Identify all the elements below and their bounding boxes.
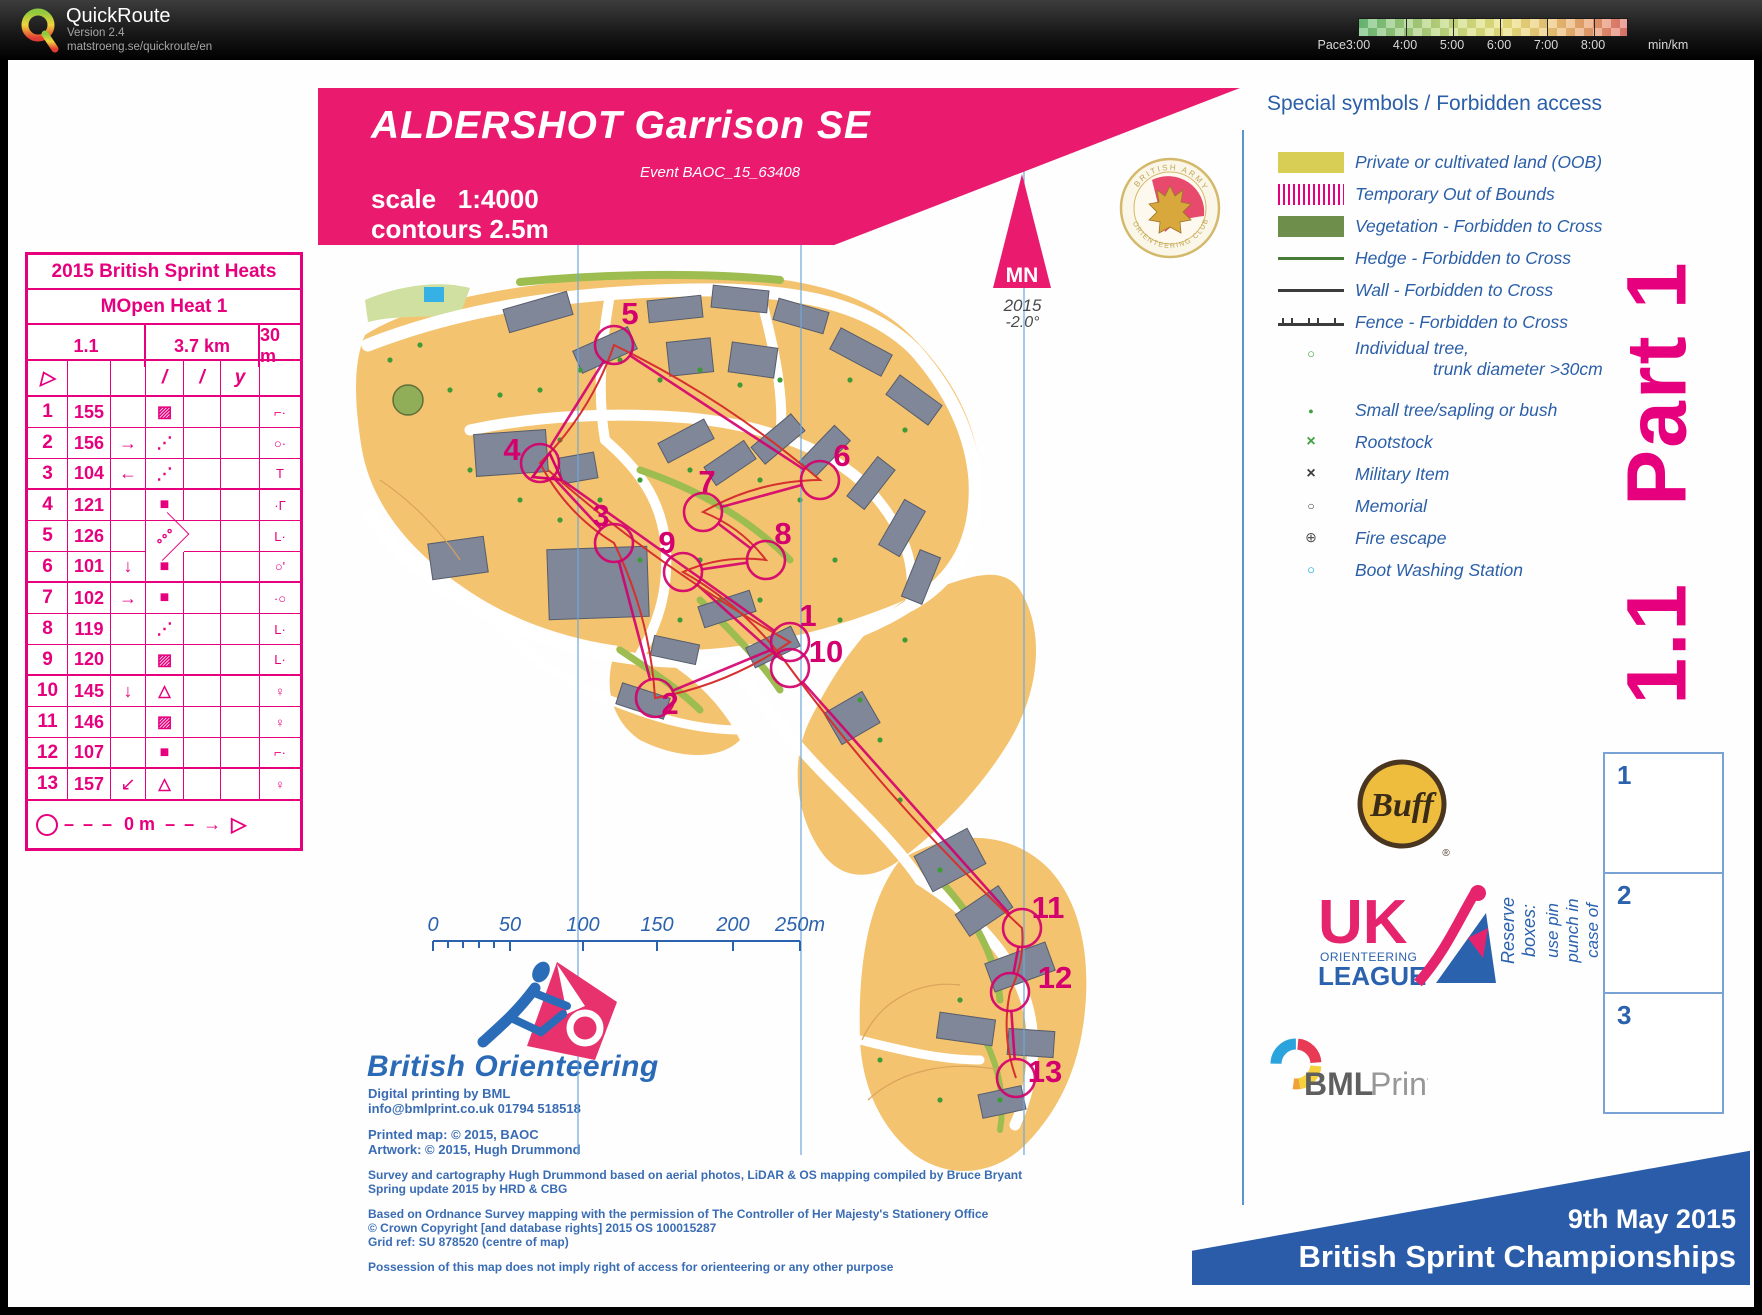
control-cell: ·○: [260, 583, 300, 614]
tree-dot: [737, 382, 742, 387]
control-cell: [184, 583, 221, 614]
control-cell: [221, 676, 260, 707]
control-row: 11146▨♀: [28, 707, 300, 738]
pace-tick-label: 6:00: [1487, 38, 1511, 52]
control-cell: 4: [28, 490, 68, 521]
pace-tick-label: 3:00: [1346, 38, 1370, 52]
control-cell: 121: [68, 490, 111, 521]
control-cell: [221, 738, 260, 769]
legend-swatch-cell: [1267, 465, 1355, 483]
control-cell: 126: [68, 521, 111, 552]
control-cell: 13: [28, 769, 68, 800]
north-declination-value: -2.0°: [985, 314, 1060, 332]
legend-swatch-cell: [1267, 529, 1355, 547]
control-row: 10145↓△♀: [28, 676, 300, 707]
tree-dot: [757, 597, 762, 602]
legend-item: Fire escape: [1267, 522, 1597, 554]
legend-label-line: Vegetation - Forbidden to Cross: [1355, 216, 1602, 237]
control-cell: [221, 645, 260, 676]
pace-tick-line: [1547, 19, 1548, 36]
control-cell: [111, 490, 146, 521]
veg-icon: [1278, 216, 1344, 237]
control-cell: [111, 614, 146, 645]
tree-dot: [937, 1097, 942, 1102]
tree-dot: [677, 617, 682, 622]
map-title: ALDERSHOT Garrison SE: [371, 104, 871, 148]
control-cell: [221, 397, 260, 428]
legend-item: Small tree/sapling or bush: [1267, 394, 1597, 426]
credit-gap: [368, 1249, 1022, 1260]
baoc-club-badge: BRITISH ARMY ORIENTEERING CLUB: [1118, 156, 1222, 260]
control-cell: [221, 583, 260, 614]
toob-icon: [1278, 184, 1344, 205]
tree-dot: [837, 617, 842, 622]
control-cell: [184, 459, 221, 490]
control-cell: ←: [111, 459, 146, 490]
card-header-symbol: [260, 361, 300, 395]
control-cell: [111, 707, 146, 738]
legend-swatch-cell: [1267, 152, 1355, 173]
control-cell: [184, 645, 221, 676]
legend-label: Temporary Out of Bounds: [1355, 184, 1555, 205]
legend-item: Memorial: [1267, 490, 1597, 522]
app-title: QuickRoute: [66, 5, 171, 28]
uk-orienteering-league-logo: UK ORIENTEERING LEAGUE: [1318, 883, 1503, 993]
finish-dash: – – –: [64, 814, 114, 835]
finish-circle-icon: [36, 814, 58, 836]
pace-tick-label: 7:00: [1534, 38, 1558, 52]
tree-dot: [557, 517, 562, 522]
legend-item: Individual tree,trunk diameter >30cm: [1267, 338, 1597, 394]
control-cell: 6: [28, 552, 68, 583]
legend-swatch-cell: [1267, 338, 1355, 370]
card-symbol-header: ▷//y: [28, 361, 300, 397]
control-cell: L·: [260, 614, 300, 645]
event-title: British Sprint Championships: [1299, 1239, 1736, 1275]
legend-swatch-cell: [1267, 497, 1355, 515]
control-cell: [184, 521, 221, 552]
scale-tick-label: 250m: [775, 914, 825, 937]
legend-swatch-cell: [1267, 401, 1355, 419]
svg-text:Buff: Buff: [1369, 787, 1437, 824]
tree-dot: [537, 387, 542, 392]
course-part-label-wrap: 1.1 Part 1: [1592, 222, 1722, 742]
legend-label-line: Military Item: [1355, 464, 1449, 485]
svg-text:®: ®: [1442, 848, 1450, 859]
control-description-card: 2015 British Sprint Heats MOpen Heat 1 1…: [25, 252, 303, 851]
credit-line: Possession of this map does not imply ri…: [368, 1260, 1022, 1274]
control-cell: ⌐·: [260, 738, 300, 769]
north-declination-year: 2015: [985, 296, 1060, 316]
control-row: 5126∘∘∘L·: [28, 521, 300, 552]
control-cell: ⋰: [146, 428, 184, 459]
control-cell: [111, 397, 146, 428]
control-cell: 1: [28, 397, 68, 428]
scale-tick-label: 0: [427, 914, 438, 937]
control-number: 1: [799, 598, 816, 633]
control-number: 11: [1032, 890, 1065, 925]
hedge-icon: [1278, 257, 1344, 260]
card-header-symbol: /: [146, 361, 184, 395]
legend-swatch-cell: [1267, 216, 1355, 237]
legend-swatch-cell: [1267, 184, 1355, 205]
control-number: 5: [621, 296, 638, 331]
control-cell: ⋰: [146, 459, 184, 490]
card-header-symbol: [68, 361, 111, 395]
svg-text:LEAGUE: LEAGUE: [1318, 961, 1426, 991]
control-cell: 2: [28, 428, 68, 459]
reserve-boxes: 123: [1603, 754, 1724, 1114]
smalltree-icon: [1308, 401, 1313, 419]
control-cell: 11: [28, 707, 68, 738]
control-number: 13: [1028, 1054, 1062, 1089]
memorial-icon: [1307, 497, 1314, 515]
legend-label: Military Item: [1355, 464, 1449, 485]
control-cell: [221, 707, 260, 738]
legend-label-line: Small tree/sapling or bush: [1355, 400, 1557, 421]
legend-label: Private or cultivated land (OOB): [1355, 152, 1602, 173]
tree-dot: [902, 427, 907, 432]
control-cell: L·: [260, 645, 300, 676]
card-header-symbol: y: [221, 361, 260, 395]
legend-label-line: Temporary Out of Bounds: [1355, 184, 1555, 205]
pace-tick-label: 4:00: [1393, 38, 1417, 52]
tree-dot: [657, 377, 662, 382]
tree-dot: [497, 392, 502, 397]
legend-label: Memorial: [1355, 496, 1427, 517]
course-part-label: 1.1 Part 1: [1609, 260, 1706, 704]
control-number: 7: [698, 464, 715, 499]
legend-label: Boot Washing Station: [1355, 560, 1523, 581]
control-cell: ·Γ: [260, 490, 300, 521]
control-cell: ♀: [260, 707, 300, 738]
buff-logo: Buff ®: [1352, 756, 1456, 860]
tree-dot: [877, 737, 882, 742]
reserve-label-wrap: Reserve boxes: use pin punch in case of …: [1540, 690, 1602, 1170]
scale-tick-label: 50: [499, 914, 521, 937]
card-header-symbol: /: [184, 361, 221, 395]
finish-dash-arrow: – – →: [165, 814, 223, 835]
control-cell: L·: [260, 521, 300, 552]
pace-tick-line: [1594, 19, 1595, 36]
control-row: 3104←⋰T: [28, 459, 300, 490]
control-cell: ▨: [146, 707, 184, 738]
control-cell: 3: [28, 459, 68, 490]
legend-item: Fence - Forbidden to Cross: [1267, 306, 1597, 338]
tree-dot: [777, 377, 782, 382]
legend-label-line: Fence - Forbidden to Cross: [1355, 312, 1568, 333]
svg-text:UK: UK: [1318, 888, 1408, 957]
legend-label-line: Boot Washing Station: [1355, 560, 1523, 581]
control-number: 4: [503, 432, 521, 467]
pace-gradient-bar: [1358, 18, 1628, 37]
pace-tick-line: [1500, 19, 1501, 36]
app-url: matstroeng.se/quickroute/en: [67, 41, 212, 53]
legend-label: Vegetation - Forbidden to Cross: [1355, 216, 1602, 237]
control-row: 12107■⌐·: [28, 738, 300, 769]
boot-icon: [1307, 561, 1315, 579]
control-cell: ♀: [260, 676, 300, 707]
event-date: 9th May 2015: [1568, 1204, 1736, 1235]
map-contours: contours 2.5m: [371, 214, 549, 245]
control-row: 7102→■·○: [28, 583, 300, 614]
control-cell: [184, 490, 221, 521]
control-cell: 156: [68, 428, 111, 459]
tree-dot: [697, 367, 702, 372]
fence-icon: [1278, 318, 1344, 327]
control-cell: 101: [68, 552, 111, 583]
control-cell: [184, 428, 221, 459]
control-cell: 104: [68, 459, 111, 490]
control-cell: [184, 397, 221, 428]
control-cell: 5: [28, 521, 68, 552]
tree-dot: [637, 477, 642, 482]
control-cell: 146: [68, 707, 111, 738]
control-cell: [111, 738, 146, 769]
reserve-title: Reserve boxes:: [1499, 896, 1541, 963]
tree-dot: [832, 557, 837, 562]
quickroute-window: { "app": { "name": "QuickRoute", "versio…: [0, 0, 1762, 1315]
control-cell: [184, 552, 221, 583]
control-cell: 102: [68, 583, 111, 614]
credit-line: Grid ref: SU 878520 (centre of map): [368, 1235, 1022, 1249]
legend-label-line: Private or cultivated land (OOB): [1355, 152, 1602, 173]
tree-dot: [637, 557, 642, 562]
legend-swatch-cell: [1267, 257, 1355, 260]
military-icon: [1306, 465, 1315, 483]
control-cell: [184, 738, 221, 769]
control-cell: ↓: [111, 676, 146, 707]
legend-label-line: Individual tree,: [1355, 338, 1603, 359]
control-number: 10: [809, 634, 843, 669]
control-cell: ■: [146, 583, 184, 614]
control-cell: [111, 645, 146, 676]
control-cell: ○·: [260, 428, 300, 459]
control-cell: △: [146, 769, 184, 800]
control-cell: ⋰: [146, 614, 184, 645]
control-cell: ▨: [146, 645, 184, 676]
bmlprint-logo: BML Print: [1268, 1033, 1428, 1105]
legend-swatch-cell: [1267, 561, 1355, 579]
pace-tick-line: [1453, 19, 1454, 36]
tree-dot: [877, 1057, 882, 1062]
control-cell: 7: [28, 583, 68, 614]
tree-dot: [997, 1097, 1002, 1102]
tree-icon: [1307, 345, 1315, 363]
card-header-symbol: [111, 361, 146, 395]
control-cell: ▨: [146, 397, 184, 428]
tree-dot: [902, 637, 907, 642]
control-cell: [184, 769, 221, 800]
app-toolbar: QuickRoute Version 2.4 matstroeng.se/qui…: [0, 0, 1762, 60]
legend-item: Private or cultivated land (OOB): [1267, 146, 1597, 178]
quickroute-logo-icon: [18, 5, 64, 55]
control-cell: [184, 676, 221, 707]
legend-label-line: Memorial: [1355, 496, 1427, 517]
tree-dot: [757, 477, 762, 482]
card-header-symbol: ▷: [28, 361, 68, 395]
legend-item: Hedge - Forbidden to Cross: [1267, 242, 1597, 274]
legend-item: Rootstock: [1267, 426, 1597, 458]
legend-label-line: Hedge - Forbidden to Cross: [1355, 248, 1571, 269]
rootstock-icon: [1306, 433, 1315, 451]
map-event-code: Event BAOC_15_63408: [640, 164, 800, 181]
tree-dot: [847, 377, 852, 382]
control-number: 3: [592, 498, 609, 533]
control-cell: 107: [68, 738, 111, 769]
control-cell: 9: [28, 645, 68, 676]
legend-label-line: Wall - Forbidden to Cross: [1355, 280, 1553, 301]
tree-dot: [417, 342, 422, 347]
control-cell: ♀: [260, 769, 300, 800]
svg-text:BML: BML: [1304, 1066, 1373, 1102]
control-cell: 145: [68, 676, 111, 707]
control-number: 12: [1038, 960, 1072, 995]
tree-dot: [447, 387, 452, 392]
legend-item: Military Item: [1267, 458, 1597, 490]
reserve-box: 3: [1603, 992, 1724, 1114]
legend-item: Temporary Out of Bounds: [1267, 178, 1597, 210]
legend-item: Boot Washing Station: [1267, 554, 1597, 586]
svg-text:Print: Print: [1370, 1066, 1428, 1102]
card-rows: 1155▨⌐·2156→⋰○·3104←⋰T4121■·Γ5126∘∘∘L·61…: [28, 397, 300, 800]
legend-label-line: Fire escape: [1355, 528, 1446, 549]
pace-tick-label: 8:00: [1581, 38, 1605, 52]
control-number: 9: [658, 525, 675, 560]
control-cell: 120: [68, 645, 111, 676]
tree-dot: [687, 467, 692, 472]
legend-label-line: Rootstock: [1355, 432, 1433, 453]
card-course-stats: 1.1 3.7 km 30 m: [28, 325, 300, 361]
legend-item: Vegetation - Forbidden to Cross: [1267, 210, 1597, 242]
control-cell: [221, 428, 260, 459]
scale-tick-label: 150: [640, 914, 673, 937]
control-number: 2: [661, 686, 678, 721]
control-row: 8119⋰L·: [28, 614, 300, 645]
orienteering-map: 12345678910111213: [300, 80, 1245, 1225]
finish-distance: 0 m: [124, 814, 155, 835]
control-row: 2156→⋰○·: [28, 428, 300, 459]
control-cell: 12: [28, 738, 68, 769]
control-cell: ↙: [111, 769, 146, 800]
control-cell: [221, 459, 260, 490]
control-row: 13157↙△♀: [28, 769, 300, 800]
building: [666, 338, 713, 376]
finish-triangle-icon: ▷: [231, 812, 246, 837]
control-cell: 10: [28, 676, 68, 707]
control-cell: [184, 614, 221, 645]
legend-swatch-cell: [1267, 318, 1355, 327]
card-subtitle: MOpen Heat 1: [28, 290, 300, 325]
control-cell: 157: [68, 769, 111, 800]
tree-dot: [857, 697, 862, 702]
building: [547, 546, 649, 619]
scale-tick-label: 100: [566, 914, 599, 937]
legend-label: Small tree/sapling or bush: [1355, 400, 1557, 421]
control-cell: [221, 552, 260, 583]
pace-tick-line: [1406, 19, 1407, 36]
tree-dot: [467, 467, 472, 472]
legend-label: Individual tree,trunk diameter >30cm: [1355, 338, 1603, 380]
legend-item: Wall - Forbidden to Cross: [1267, 274, 1597, 306]
card-title: 2015 British Sprint Heats: [28, 255, 300, 290]
control-cell: 155: [68, 397, 111, 428]
legend-title: Special symbols / Forbidden access: [1267, 92, 1602, 116]
control-cell: [184, 707, 221, 738]
control-cell: →: [111, 583, 146, 614]
control-cell: △: [146, 676, 184, 707]
pace-unit-label: min/km: [1648, 38, 1688, 52]
pace-tick-label: 5:00: [1440, 38, 1464, 52]
control-cell: [221, 769, 260, 800]
oob-icon: [1278, 152, 1344, 173]
control-cell: ○': [260, 552, 300, 583]
control-number: 6: [833, 438, 850, 473]
control-number: 8: [774, 516, 791, 551]
british-orienteering-logo: [445, 952, 630, 1064]
scale-tick-label: 200: [716, 914, 749, 937]
legend-label: Rootstock: [1355, 432, 1433, 453]
tree-dot: [957, 997, 962, 1002]
north-arrow-icon: MN: [985, 168, 1060, 296]
legend-label: Wall - Forbidden to Cross: [1355, 280, 1553, 301]
legend-label: Fire escape: [1355, 528, 1446, 549]
card-finish-row: – – – 0 m – – → ▷: [28, 800, 300, 848]
control-row: 1155▨⌐·: [28, 397, 300, 428]
tree-dot: [387, 357, 392, 362]
control-cell: T: [260, 459, 300, 490]
control-cell: [221, 490, 260, 521]
tree-dot: [937, 867, 942, 872]
control-cell: [221, 521, 260, 552]
wall-icon: [1278, 289, 1344, 292]
svg-text:MN: MN: [1006, 264, 1039, 287]
legend-label-line2: trunk diameter >30cm: [1355, 359, 1603, 380]
runner-icon: [1418, 885, 1496, 983]
control-cell: [221, 614, 260, 645]
legend-swatch-cell: [1267, 433, 1355, 451]
legend-swatch-cell: [1267, 289, 1355, 292]
legend-list: Private or cultivated land (OOB)Temporar…: [1267, 146, 1597, 586]
app-version: Version 2.4: [67, 27, 125, 39]
control-cell: →: [111, 428, 146, 459]
reserve-box: 2: [1603, 872, 1724, 994]
pace-legend-label: Pace: [1290, 38, 1346, 52]
control-cell: [111, 521, 146, 552]
legend-label: Hedge - Forbidden to Cross: [1355, 248, 1571, 269]
control-cell: ⌐·: [260, 397, 300, 428]
tree-dot: [797, 497, 802, 502]
reserve-box: 1: [1603, 752, 1724, 874]
tree-dot: [517, 497, 522, 502]
scale-bar: [433, 941, 800, 951]
map-scale: scale 1:4000: [371, 184, 539, 215]
legend-label: Fence - Forbidden to Cross: [1355, 312, 1568, 333]
control-row: 9120▨L·: [28, 645, 300, 676]
control-cell: 119: [68, 614, 111, 645]
building: [728, 342, 778, 378]
fire-icon: [1305, 529, 1317, 547]
control-cell: 8: [28, 614, 68, 645]
control-cell: ■: [146, 738, 184, 769]
control-cell: ↓: [111, 552, 146, 583]
